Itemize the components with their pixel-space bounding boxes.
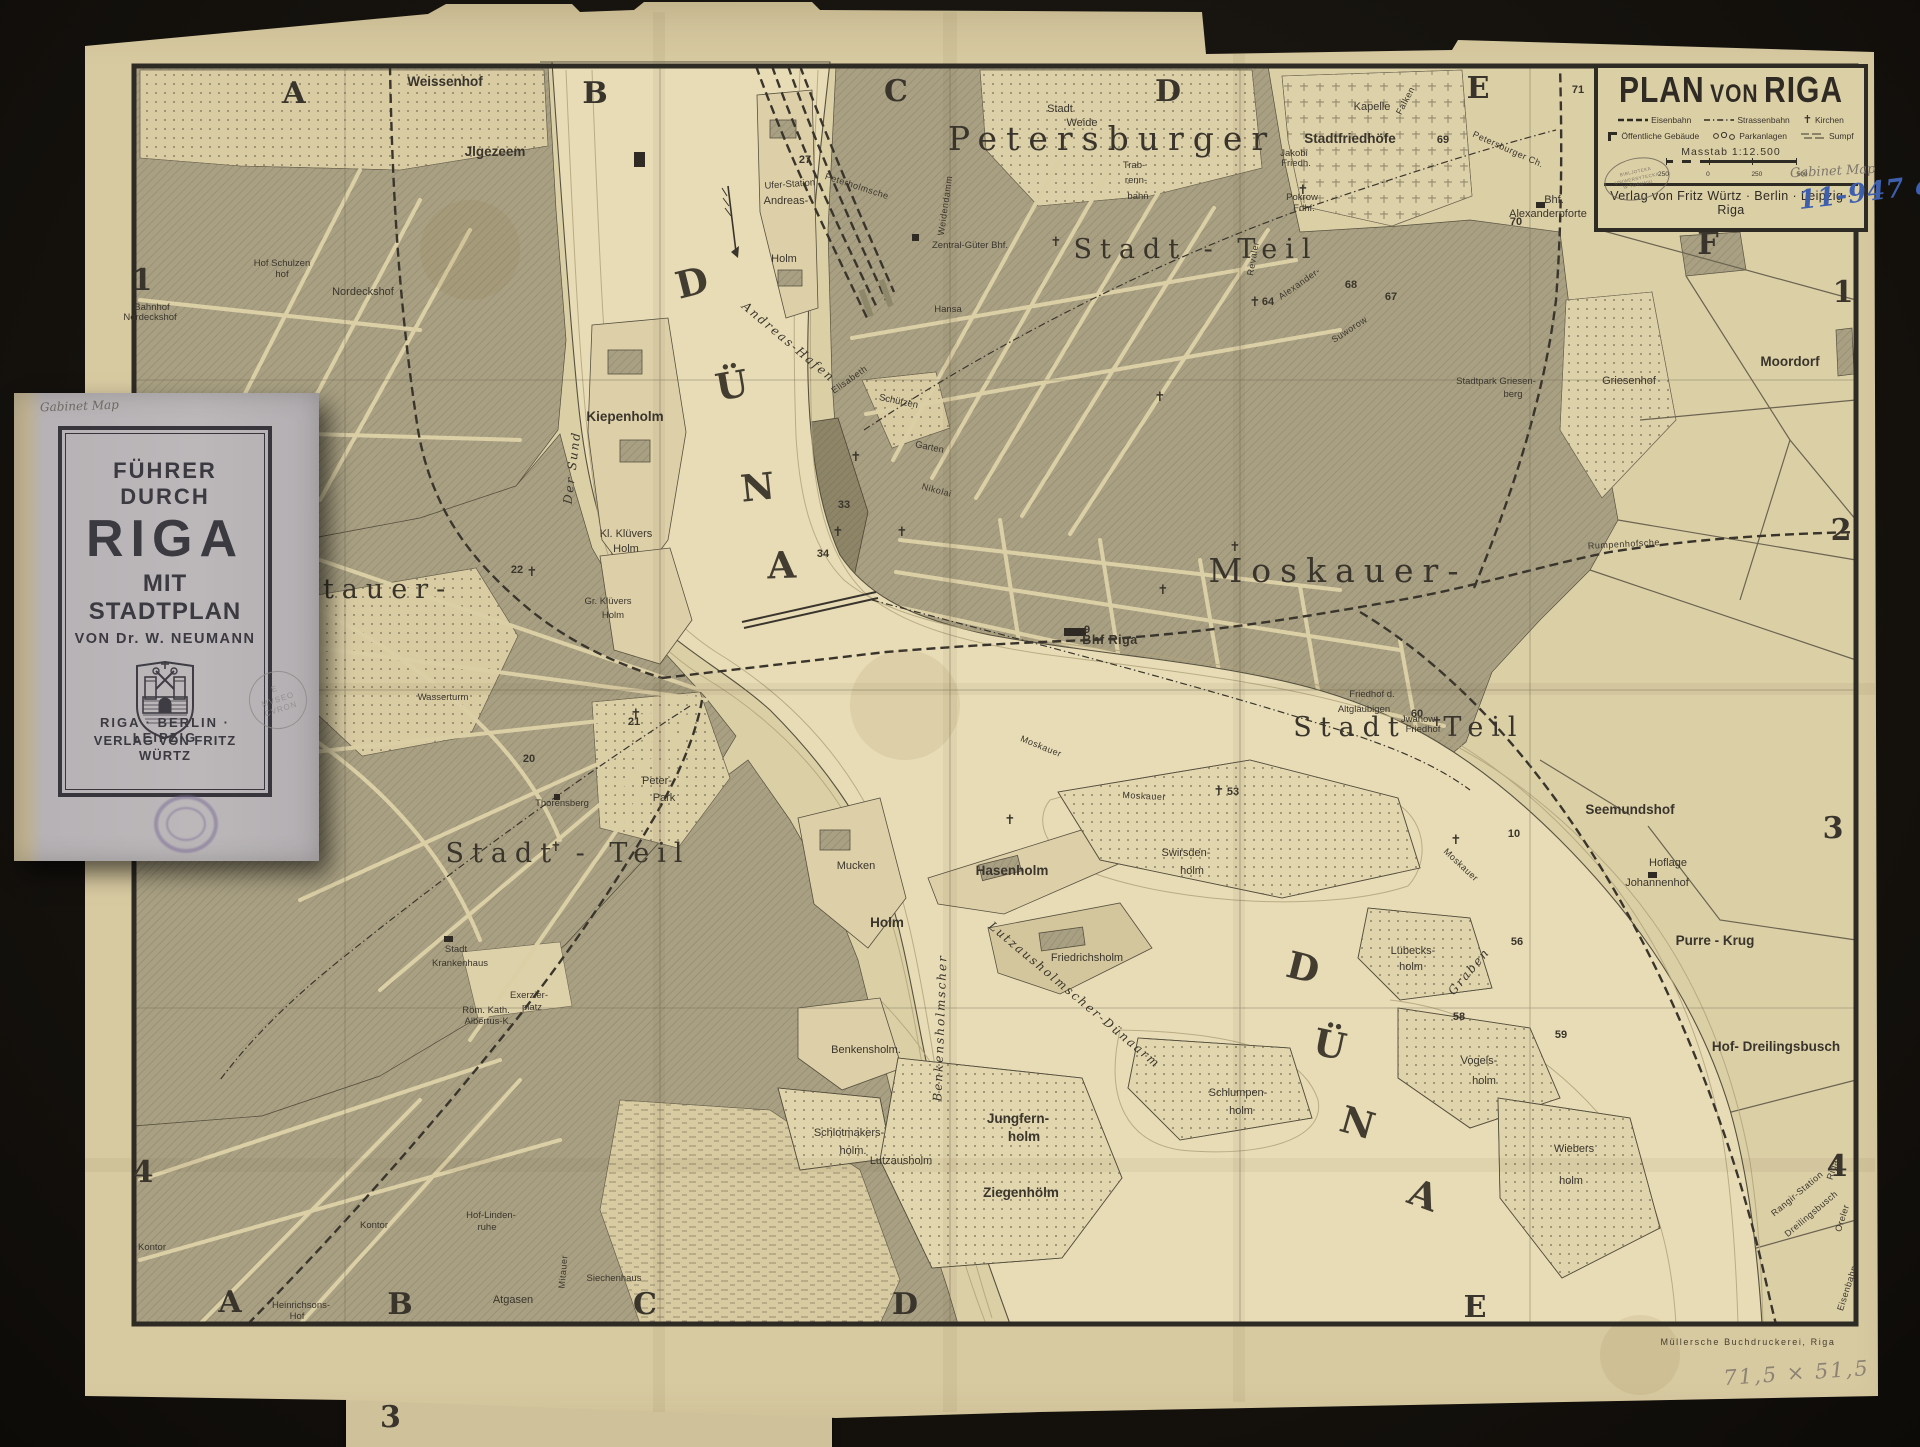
map-label: Stadt <box>1293 712 1407 743</box>
map-label: C <box>884 74 908 109</box>
map-label: 22 <box>511 564 523 576</box>
map-label: Kontor <box>360 1220 388 1231</box>
map-label: Weissenhof <box>407 74 483 89</box>
map-label: 56 <box>1511 936 1523 948</box>
map-label: A <box>765 542 798 587</box>
map-label: 59 <box>1555 1029 1567 1041</box>
map-label: Trab- <box>1123 160 1145 171</box>
map-label: ✝ <box>1451 833 1462 848</box>
booklet-title-line2: RIGA <box>66 513 264 565</box>
booklet-publisher-line: VERLAG VON FRITZ WÜRTZ <box>66 733 264 763</box>
booklet-frame: FÜHRER DURCH RIGA MIT STADTPLAN VON Dr. … <box>58 426 272 797</box>
map-label: 69 <box>1437 134 1449 146</box>
map-label: Altgläubigen <box>1338 704 1390 715</box>
map-label: Müllersche Buchdruckerei, Riga <box>1660 1337 1835 1347</box>
map-label: hof <box>275 269 289 280</box>
map-label: 33 <box>838 499 850 511</box>
map-label: Stadt <box>1047 103 1073 115</box>
scale-tick-labels: 250 0 250 500 <box>1658 171 1804 179</box>
map-label: 34 <box>817 548 830 560</box>
map-label: Heinrichsons- <box>272 1300 330 1311</box>
guidebook-cover: Gabinet Map FÜHRER DURCH RIGA MIT STADTP… <box>14 393 319 861</box>
map-label: 10 <box>1508 828 1520 840</box>
map-label: Moordorf <box>1760 354 1820 369</box>
map-label: ✝ <box>631 707 642 722</box>
map-label: 53 <box>1227 786 1239 798</box>
map-label: Friedh. <box>1281 158 1311 169</box>
map-label: ✝ <box>1155 390 1166 405</box>
map-label: D <box>1155 74 1181 109</box>
legend-label: Strassenbahn <box>1737 115 1789 125</box>
map-label: Hof <box>290 1311 305 1322</box>
map-label: Bhf Riga <box>1082 633 1138 647</box>
map-label: B <box>582 76 607 111</box>
map-label: Wasserturm <box>418 692 469 703</box>
map-label: Albertus-K. <box>465 1016 512 1027</box>
map-label: 3 <box>1823 811 1844 846</box>
map-label: Jlgezeem <box>465 144 526 159</box>
map-label: Holm <box>613 543 639 555</box>
map-label: Stadt - Teil <box>1073 234 1318 265</box>
map-label: ✝ <box>1051 235 1062 250</box>
map-label: Bhf. <box>1544 194 1564 206</box>
map-label: ✝ <box>1005 813 1016 828</box>
map-label: Moskauer- <box>1209 551 1468 590</box>
map-label: B <box>387 1287 412 1322</box>
legend-label: Öffentliche Gebäude <box>1621 131 1699 141</box>
map-label: 1 <box>132 263 153 298</box>
map-label: A <box>217 1285 242 1320</box>
map-label: holm <box>1008 1129 1040 1144</box>
tram-dashdot-icon <box>1704 117 1734 123</box>
map-label: Nordeckshof <box>123 312 177 323</box>
map-label: Hof- Dreilingsbusch <box>1712 1039 1840 1054</box>
map-label: Jungfern- <box>987 1111 1049 1126</box>
map-label: Andreas- <box>764 195 809 207</box>
map-label: Krankenhaus <box>432 958 488 969</box>
map-label: Holm <box>771 253 797 265</box>
map-label: Kontor <box>138 1242 166 1253</box>
title-cartouche: PLAN VON RIGA Eisenbahn Strassenbahn ✝ K… <box>1594 64 1868 232</box>
legend-label: Sumpf <box>1829 131 1854 141</box>
map-label: Gr. Klüvers <box>585 596 632 607</box>
map-label: holm. <box>840 1145 867 1157</box>
map-label: 71 <box>1572 84 1584 96</box>
map-label: Kapelle <box>1354 101 1391 113</box>
map-label: Seemundshof <box>1585 802 1675 817</box>
map-label: ✝ <box>1298 183 1309 198</box>
map-label: holm <box>1472 1075 1496 1087</box>
map-label: ✝ <box>1230 540 1241 555</box>
map-label: 68 <box>1345 279 1357 291</box>
map-label: renn- <box>1125 175 1147 186</box>
map-label: bahn <box>1127 191 1148 202</box>
map-label: Hasenholm <box>976 863 1049 878</box>
booklet-title-line3: MIT STADTPLAN <box>66 570 264 626</box>
map-label: Benkensholm. <box>831 1044 901 1056</box>
map-label: E <box>1464 1290 1487 1325</box>
map-label: 60 <box>1411 708 1423 720</box>
map-label: Purre - Krug <box>1676 933 1755 948</box>
map-label: ruhe <box>477 1222 496 1233</box>
map-label: Friedhof d. <box>1349 689 1394 700</box>
map-label: Holm <box>870 915 904 930</box>
map-label: Swirsden- <box>1162 847 1211 859</box>
map-label: Thorensberg <box>535 798 589 809</box>
booklet-title-line1: FÜHRER DURCH <box>66 458 264 510</box>
map-label: Ziegenhölm <box>983 1185 1059 1200</box>
map-label: 9 <box>1084 624 1090 636</box>
map-label: Exerzier- <box>510 990 548 1001</box>
map-label: Stadtfriedhöfe <box>1304 131 1396 146</box>
map-label: 64 <box>1262 296 1275 308</box>
map-label: Hansa <box>934 304 962 315</box>
map-label: ✝ <box>551 840 562 855</box>
map-label: Vogels- <box>1461 1055 1498 1067</box>
map-label: Siechenhaus <box>587 1273 642 1284</box>
map-title: PLAN VON RIGA <box>1598 71 1864 112</box>
map-label: Zentral-Güter Bhf. <box>932 240 1008 251</box>
map-label: holm <box>1180 865 1204 877</box>
map-label: E <box>1467 71 1490 106</box>
booklet-pencil-note: Gabinet Map <box>40 398 119 415</box>
map-label: Hof Schulzen <box>254 258 311 269</box>
map-label: ✝ <box>1158 583 1169 598</box>
map-label: Wiebers <box>1554 1143 1595 1155</box>
map-label: ✝ <box>1214 784 1225 799</box>
map-label: Park <box>653 792 676 804</box>
purple-round-stamp <box>154 795 218 853</box>
map-label: N <box>739 463 777 510</box>
map-label: 2 <box>1831 513 1852 548</box>
map-label: Peter- <box>642 775 672 787</box>
map-label: Johannenhof <box>1625 877 1690 889</box>
map-label: Griesenhof <box>1602 375 1657 387</box>
map-label: Fdhf. <box>1293 203 1315 214</box>
map-label: A <box>281 76 306 111</box>
map-label: Schlotmakers- <box>814 1127 885 1139</box>
scale-label: Masstab 1:12.500 <box>1598 146 1864 158</box>
map-label: ✝ <box>897 525 908 540</box>
booklet-author-line: VON Dr. W. NEUMANN <box>66 631 264 647</box>
map-label: ✝ <box>851 450 862 465</box>
map-label: D <box>892 1287 918 1322</box>
map-label: holm <box>1559 1175 1583 1187</box>
map-label: Teil <box>1443 712 1524 743</box>
map-label: Lübecks- <box>1391 945 1436 957</box>
map-label: holm <box>1229 1105 1253 1117</box>
map-label: Hof-Linden- <box>466 1210 516 1221</box>
church-cross-icon: ✝ <box>1803 113 1812 126</box>
scanned-map-photograph: 3 <box>0 0 1920 1447</box>
public-building-icon <box>1608 132 1618 141</box>
map-label: Hoflage <box>1649 857 1687 869</box>
map-label: Lutzausholm <box>870 1155 932 1167</box>
map-label: 58 <box>1453 1011 1465 1023</box>
map-label: Weide <box>1067 117 1098 129</box>
map-label: Friedrichsholm <box>1051 952 1123 964</box>
map-label: holm <box>1399 961 1423 973</box>
map-label: 4 <box>133 1155 154 1190</box>
map-label: ✝ <box>527 565 538 580</box>
map-label: F <box>1697 227 1718 262</box>
map-label: Schlumpen- <box>1209 1087 1268 1099</box>
map-label: 67 <box>1385 291 1397 303</box>
scale-bar <box>1666 160 1796 170</box>
railway-dashes-icon <box>1618 117 1648 123</box>
map-label: 20 <box>523 753 535 765</box>
map-label: Kl. Klüvers <box>600 528 653 540</box>
legend-label: Parkanlagen <box>1739 131 1787 141</box>
map-label: ✝ <box>833 525 844 540</box>
map-label: Kiepenholm <box>586 409 663 424</box>
park-trees-icon <box>1712 131 1736 141</box>
map-label: Atgasen <box>493 1294 533 1306</box>
swamp-hatch-icon <box>1800 132 1826 140</box>
map-label: Stadt <box>445 944 468 955</box>
map-label: platz <box>522 1002 542 1013</box>
legend-row-2: Öffentliche Gebäude Parkanlagen Sumpf <box>1598 131 1864 141</box>
map-label: Stadt - Teil <box>445 838 690 869</box>
legend-row-1: Eisenbahn Strassenbahn ✝ Kirchen <box>1598 113 1864 126</box>
map-label: ✝ <box>1250 295 1261 310</box>
map-label: Holm <box>602 610 624 621</box>
legend-label: Eisenbahn <box>1651 115 1691 125</box>
map-label: Nordeckshof <box>332 286 395 298</box>
map-label: 27 <box>799 154 811 166</box>
map-label: Petersburger <box>948 119 1276 158</box>
map-label: 71,5 × 51,5 <box>1723 1356 1871 1390</box>
map-label: berg <box>1503 389 1522 400</box>
map-label: 1 <box>1833 275 1854 310</box>
map-label: 70 <box>1510 216 1522 228</box>
map-label: ✝ <box>1432 715 1443 730</box>
map-label: C <box>633 1287 657 1322</box>
map-label: Stadtpark Griesen- <box>1456 376 1536 387</box>
legend-label: Kirchen <box>1815 115 1844 125</box>
map-label: Röm. Kath. <box>462 1005 510 1016</box>
map-label: Mucken <box>837 860 876 872</box>
